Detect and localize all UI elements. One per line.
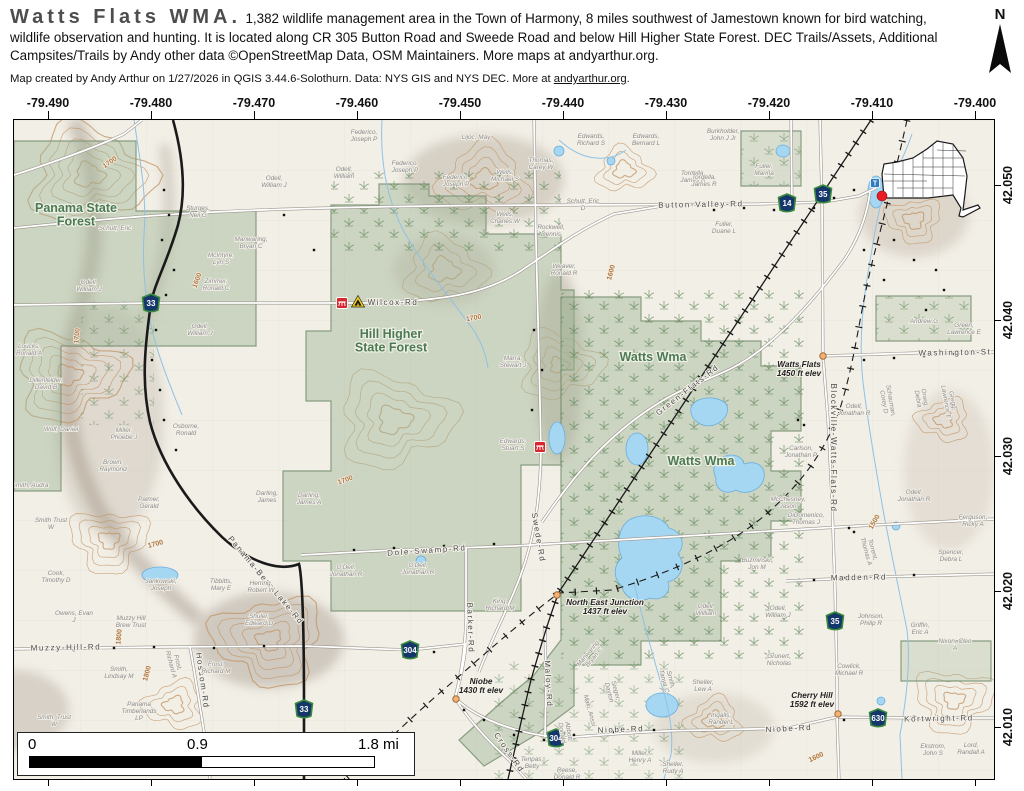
lon-tick — [769, 111, 770, 119]
parcel-owner-label: Andrew G — [909, 318, 938, 325]
parcel-owner-label: Loucks,Ronald A — [16, 343, 42, 357]
scale-mid: 0.9 — [187, 736, 208, 753]
elevation-point-marker — [453, 696, 459, 702]
parcel-owner-label: Sheller,Rudy A — [662, 761, 684, 775]
lon-label: -79.490 — [27, 96, 69, 110]
parcel-owner-label: Tordella,James R — [690, 174, 717, 188]
lon-label: -79.480 — [130, 96, 172, 110]
area-label: Watts Wma — [620, 350, 688, 364]
road-label: Button-Valley-Rd — [658, 199, 744, 209]
parcel-owner-label: DiDomenico,Thomas J — [788, 512, 825, 526]
attribution-text: Map created by Andy Arthur on 1/27/2026 … — [10, 73, 554, 85]
elevation-point-marker — [835, 711, 841, 717]
parcel-owner-label: Fuller,Marina — [754, 163, 774, 177]
road-label: Niobe-Rd — [597, 724, 644, 735]
parcel-owner-label: Tibbitts,Mary E — [210, 578, 233, 592]
lon-label: -79.400 — [954, 96, 996, 110]
parcel-owner-label: Darling,James — [256, 490, 278, 504]
scale-start: 0 — [28, 736, 36, 753]
parcel-owner-label: Johnson,Philip R — [857, 613, 884, 627]
parcel-owner-label: Darling,James A — [296, 492, 322, 506]
svg-text:304: 304 — [403, 646, 417, 655]
area-label: Hill HigherState Forest — [355, 327, 428, 355]
parcel-owner-label: Herring,Robert W — [248, 580, 276, 594]
parking-icon — [535, 442, 546, 453]
parcel-owner-label: Lijoc, May — [462, 134, 492, 141]
scale-end: 1.8 mi — [358, 736, 399, 753]
road-label: Kortwright-Rd — [904, 713, 974, 723]
lon-label: -79.410 — [851, 96, 893, 110]
road-label: Wilcox-Rd — [368, 298, 419, 307]
parcel-owner-label: Federico,Joseph P — [391, 160, 419, 174]
parcel-owner-label: Griffin,Eric A — [911, 622, 930, 636]
lat-label: 42.030 — [1001, 437, 1015, 475]
parcel-owner-label: Wolf, Daniel — [44, 426, 79, 433]
scale-bar-track — [29, 756, 375, 768]
road-label: Madden-Rd — [831, 573, 887, 583]
elevation-label: Watts Flats1450 ft elev — [777, 360, 822, 378]
lon-tick — [151, 111, 152, 119]
parcel-owner-label: Smith, Audra — [14, 482, 49, 489]
parcel-owner-label: Sturges,Neil G — [186, 205, 210, 219]
contour-label: 1700 — [73, 328, 81, 344]
elevation-label: Cherry Hill1592 ft elev — [790, 691, 835, 709]
elevation-point-marker — [554, 592, 560, 598]
lon-tick — [48, 111, 49, 119]
svg-text:630: 630 — [871, 714, 885, 723]
route-shield-630: 630 — [870, 709, 887, 727]
lat-label: 42.050 — [1001, 166, 1015, 204]
parcel-owner-label: Odell,William — [696, 603, 717, 617]
lon-label: -79.440 — [542, 96, 584, 110]
parcel-owner-label: Burkholder,John J Jr — [707, 128, 740, 142]
svg-text:T: T — [873, 181, 878, 188]
parcel-owner-label: Weaver,Ronald R — [551, 263, 578, 277]
svg-text:35: 35 — [831, 617, 840, 626]
attribution: Map created by Andy Arthur on 1/27/2026 … — [10, 73, 630, 85]
parcel-owner-label: Ingalls,Randel L — [708, 712, 734, 726]
lon-tick — [254, 111, 255, 119]
parcel-owner-label: Osborne,Ronald — [173, 423, 200, 437]
attribution-suffix: . — [627, 73, 630, 85]
trailhead-icon: T — [871, 179, 880, 188]
parcel-owner-label: Muzzy HillBrew Trust — [116, 615, 147, 629]
route-shield-35: 35 — [827, 612, 844, 630]
svg-text:35: 35 — [819, 190, 828, 199]
map-canvas: T 3333143535304304630 Panama StateForest… — [13, 119, 995, 780]
lon-tick — [357, 111, 358, 119]
parcel-owner-label: Ferguson,Ricky A — [959, 514, 988, 528]
lon-label: -79.460 — [336, 96, 378, 110]
route-shield-35: 35 — [815, 185, 832, 203]
lat-label: 42.020 — [1001, 572, 1015, 610]
lon-label: -79.430 — [645, 96, 687, 110]
lon-tick — [563, 111, 564, 119]
lat-label: 42.010 — [1001, 708, 1015, 746]
svg-text:33: 33 — [300, 705, 309, 714]
parcel-owner-label: Miller,Henry A — [629, 750, 652, 764]
route-shield-33: 33 — [296, 700, 313, 718]
elevation-point-marker — [820, 353, 826, 359]
svg-text:14: 14 — [783, 199, 792, 208]
area-label: Watts Wma — [668, 454, 736, 468]
svg-text:33: 33 — [147, 299, 156, 308]
road-label: Washington-St — [918, 347, 991, 357]
locator-dot-icon — [877, 191, 887, 201]
lon-label: -79.420 — [748, 96, 790, 110]
parcel-owner-label: Edwards,Stuart S — [500, 438, 527, 452]
scale-bar-fill — [30, 757, 202, 767]
route-shield-304: 304 — [402, 641, 419, 659]
lat-label: 42.040 — [1001, 301, 1015, 339]
lon-label: -79.450 — [439, 96, 481, 110]
parcel-owner-label: Spencer,Debra L — [938, 549, 963, 563]
parcel-owner-label: Federico,Joseph P — [442, 174, 470, 188]
north-arrow: N — [982, 6, 1018, 80]
lon-tick — [975, 111, 976, 119]
page-title: Watts Flats WMA. — [10, 6, 241, 28]
parcel-owner-label: Cowlick,Michael R — [835, 663, 864, 677]
parking-icon — [337, 298, 348, 309]
parcel-owner-label: Reese,Donald R — [554, 767, 581, 779]
parcel-owner-label: Grunert,Nicholas — [767, 653, 792, 667]
route-shield-33: 33 — [143, 294, 160, 312]
parcel-owner-label: Ekstrom,John S — [920, 743, 945, 757]
road-label: Muzzy-Hill-Rd — [31, 642, 102, 652]
parcel-owner-label: Thomas,Carey W — [529, 157, 555, 171]
parcel-owner-label: Edwards,Bernard L — [632, 133, 661, 147]
parcel-owner-label: Sheller,Lew A — [692, 679, 714, 693]
header: Watts Flats WMA. 1,382 wildlife manageme… — [10, 6, 962, 65]
north-label: N — [982, 6, 1018, 23]
lon-label: -79.470 — [233, 96, 275, 110]
parcel-owner-label: Brown,Raymond — [99, 459, 127, 473]
attribution-link[interactable]: andyarthur.org — [554, 73, 627, 85]
contour-label: 1800 — [115, 629, 123, 645]
parcel-owner-label: Palmer,Gerald — [138, 496, 160, 510]
north-arrow-icon — [982, 23, 1018, 75]
topo-map: T 3333143535304304630 Panama StateForest… — [14, 120, 994, 779]
green-patch-se — [901, 641, 991, 681]
parcel-owner-label: Rockwell,Dennis — [537, 224, 565, 238]
parcel-owner-label: Federico,Joseph P — [350, 129, 378, 143]
parcel-owner-label: Carlson,Jonathan P — [784, 445, 818, 459]
lon-tick — [666, 111, 667, 119]
road-label: Barker-Rd — [465, 602, 476, 653]
road-label: Blockville-Watts-Flats-Rd — [829, 383, 838, 512]
parcel-owner-label: Zimmer,Ronald C — [203, 278, 230, 292]
map-document: Watts Flats WMA. 1,382 wildlife manageme… — [0, 0, 1024, 791]
scale-bar: 0 0.9 1.8 mi — [17, 732, 415, 776]
parcel-owner-label: Odell,William — [334, 166, 355, 180]
parcel-owner-label: Schutt, Eric — [99, 225, 132, 232]
parcel-owner-label: Edwards,Richard S — [577, 133, 606, 147]
lon-tick — [460, 111, 461, 119]
route-shield-14: 14 — [779, 194, 796, 212]
lon-tick — [872, 111, 873, 119]
